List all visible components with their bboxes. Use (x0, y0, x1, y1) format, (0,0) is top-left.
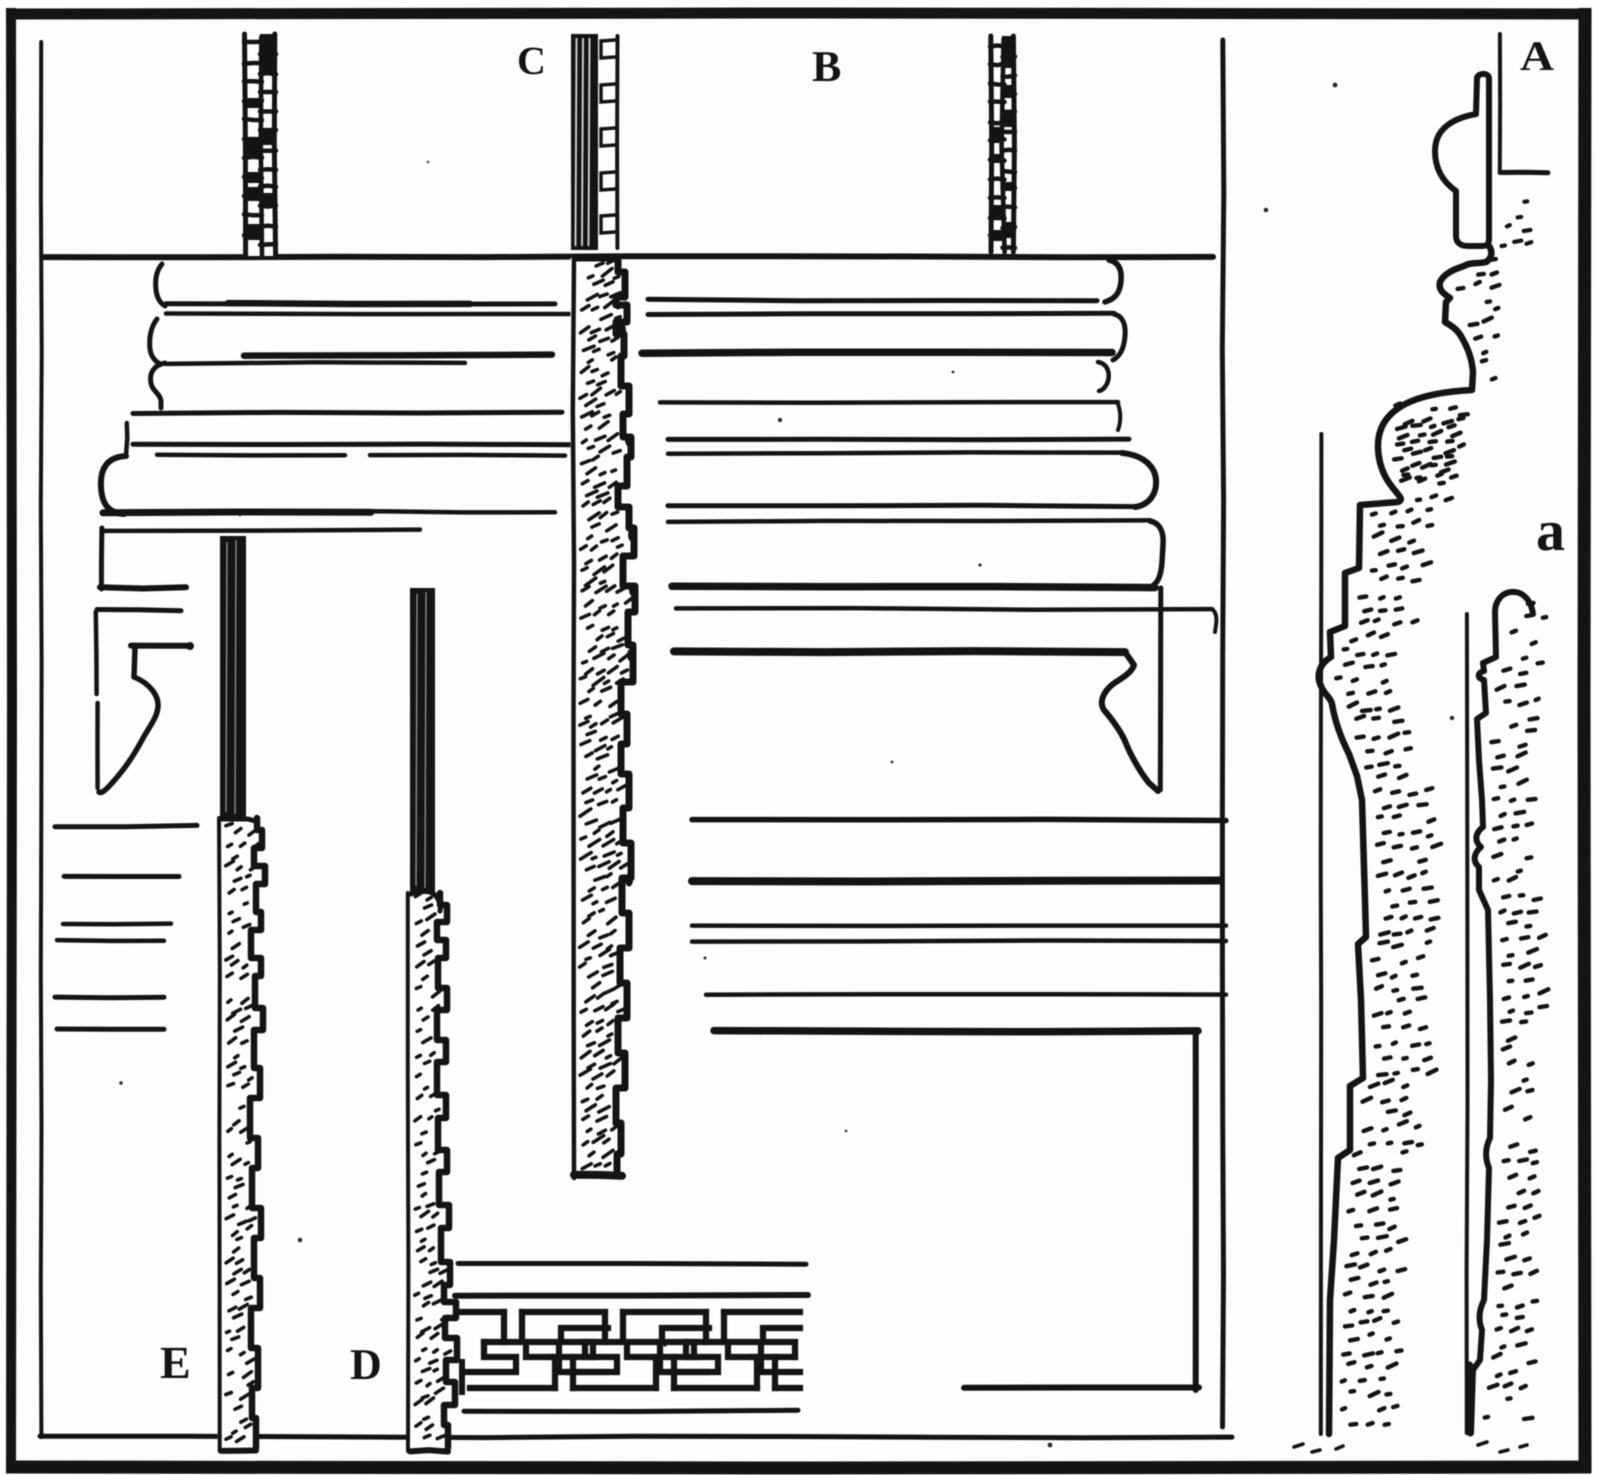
svg-text:E: E (160, 1337, 191, 1388)
svg-text:a: a (1536, 498, 1565, 563)
svg-text:D: D (350, 1340, 382, 1389)
svg-text:B: B (812, 42, 841, 91)
svg-text:A: A (1520, 34, 1555, 80)
svg-text:C: C (517, 38, 546, 83)
